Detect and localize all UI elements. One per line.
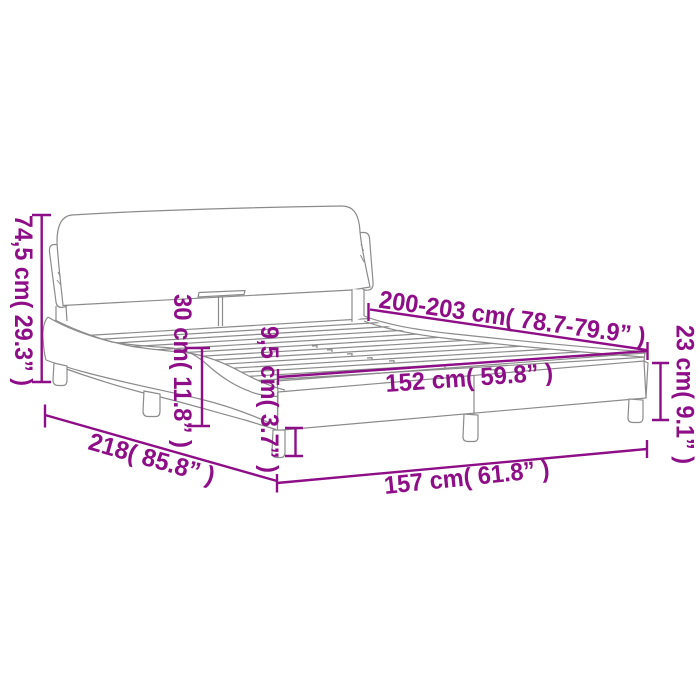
svg-text:218( 85.8” ): 218( 85.8” ) bbox=[85, 428, 218, 490]
svg-text:74,5 cm( 29.3” ): 74,5 cm( 29.3” ) bbox=[9, 215, 37, 386]
svg-text:200-203 cm( 78.7-79.9” ): 200-203 cm( 78.7-79.9” ) bbox=[377, 286, 647, 351]
svg-text:23 cm( 9.1” ): 23 cm( 9.1” ) bbox=[671, 325, 699, 464]
svg-text:30 cm( 11.8” ): 30 cm( 11.8” ) bbox=[168, 294, 196, 448]
svg-text:9,5 cm( 3.7” ): 9,5 cm( 3.7” ) bbox=[255, 326, 283, 473]
svg-text:157 cm( 61.8” ): 157 cm( 61.8” ) bbox=[383, 455, 551, 500]
